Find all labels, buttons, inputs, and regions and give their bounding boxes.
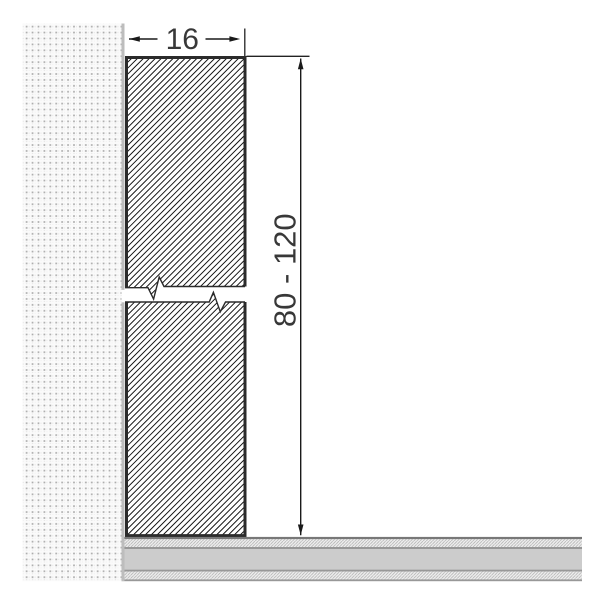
svg-text:16: 16 — [166, 23, 199, 56]
svg-text:80 - 120: 80 - 120 — [268, 213, 303, 327]
